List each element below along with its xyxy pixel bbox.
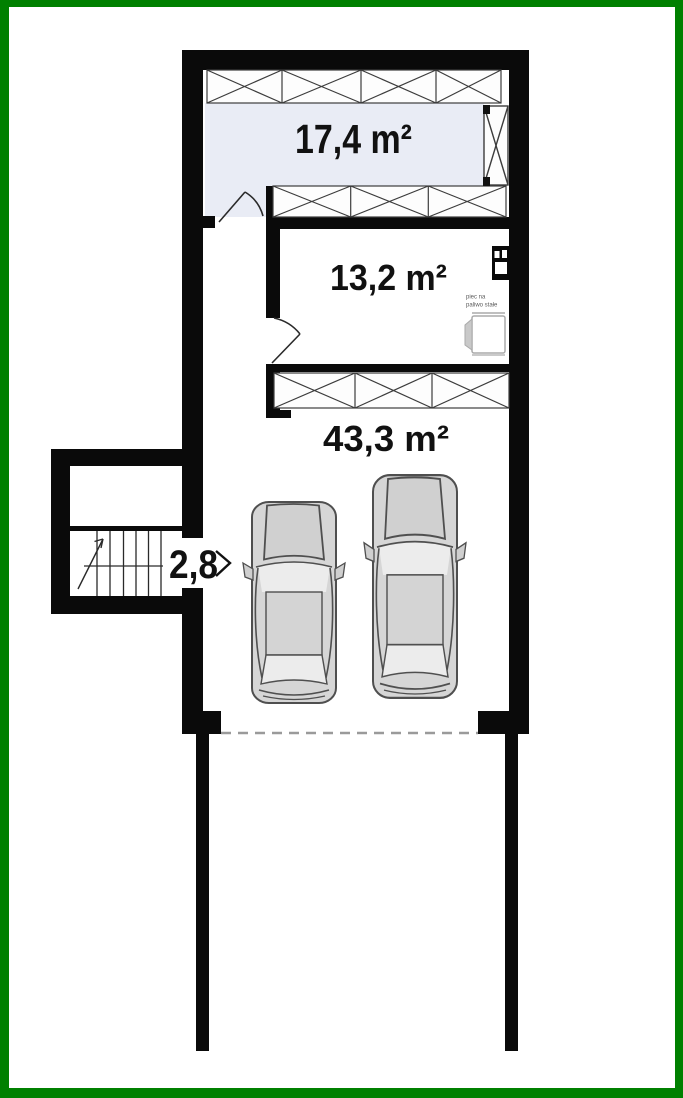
svg-text:43,3 m²: 43,3 m² xyxy=(323,418,449,459)
svg-text:paliwo stałe: paliwo stałe xyxy=(466,303,498,309)
svg-text:13,2 m²: 13,2 m² xyxy=(330,257,447,298)
svg-text:17,4 m²: 17,4 m² xyxy=(295,116,412,162)
svg-text:piec na: piec na xyxy=(466,295,486,301)
svg-text:2,8: 2,8 xyxy=(169,543,218,587)
